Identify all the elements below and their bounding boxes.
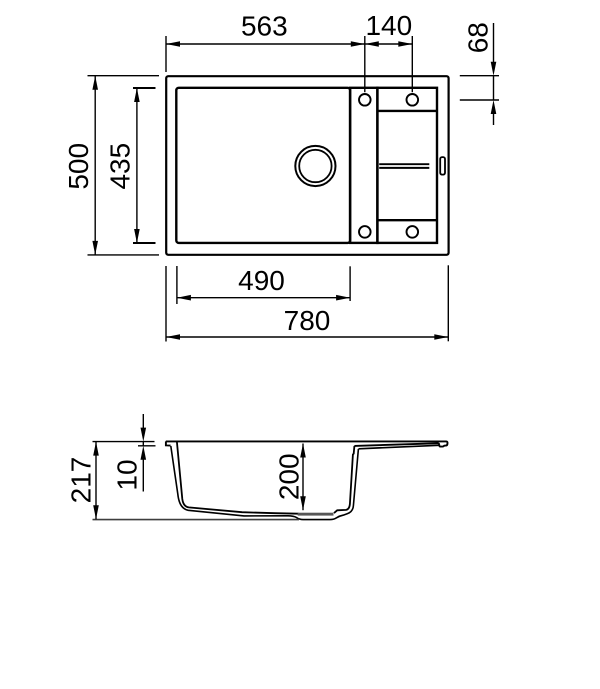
svg-text:490: 490 bbox=[238, 265, 285, 296]
svg-text:10: 10 bbox=[112, 459, 143, 490]
svg-text:500: 500 bbox=[63, 143, 94, 190]
svg-text:200: 200 bbox=[274, 453, 305, 500]
svg-text:217: 217 bbox=[65, 457, 96, 504]
svg-text:140: 140 bbox=[365, 10, 412, 41]
svg-text:780: 780 bbox=[284, 305, 331, 336]
svg-text:563: 563 bbox=[241, 10, 288, 41]
svg-text:68: 68 bbox=[462, 22, 493, 53]
svg-text:435: 435 bbox=[104, 143, 135, 190]
